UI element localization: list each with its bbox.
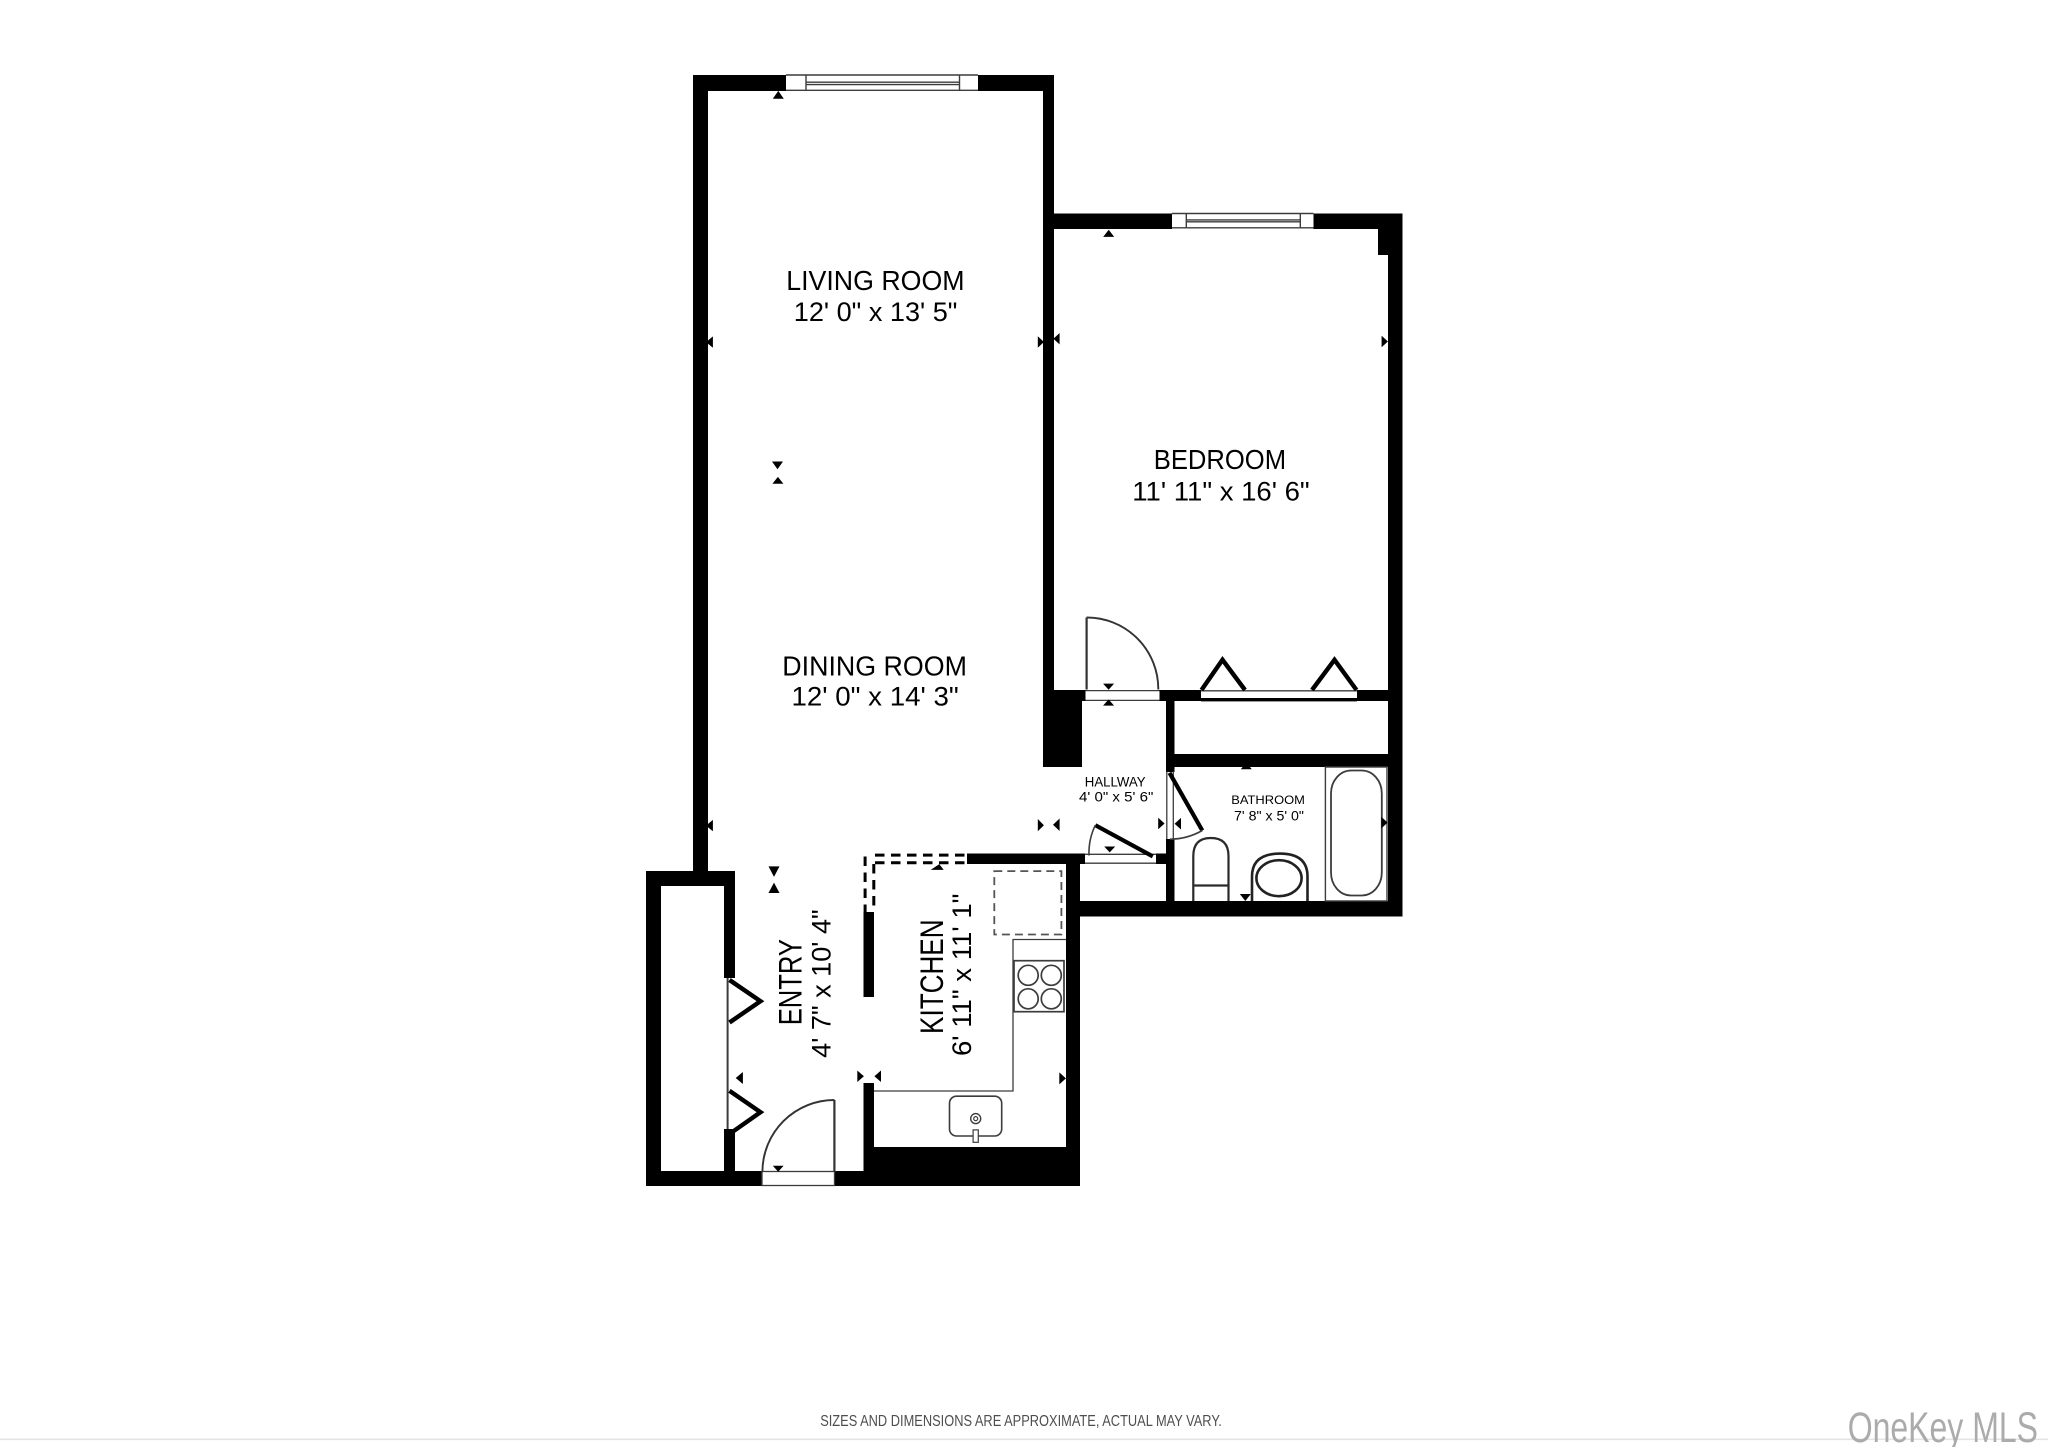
svg-text:LIVING ROOM: LIVING ROOM xyxy=(786,265,964,296)
svg-text:HALLWAY: HALLWAY xyxy=(1085,773,1146,789)
svg-text:OneKey MLS: OneKey MLS xyxy=(1848,1405,2038,1447)
svg-text:6' 11" x 11' 1": 6' 11" x 11' 1" xyxy=(947,894,977,1057)
svg-text:BEDROOM: BEDROOM xyxy=(1154,444,1286,475)
svg-text:12' 0" x 14' 3": 12' 0" x 14' 3" xyxy=(792,682,959,712)
svg-text:4' 0" x 5' 6": 4' 0" x 5' 6" xyxy=(1079,789,1153,805)
svg-text:ENTRY: ENTRY xyxy=(772,939,808,1025)
svg-text:11' 11" x 16' 6": 11' 11" x 16' 6" xyxy=(1132,477,1309,507)
svg-text:KITCHEN: KITCHEN xyxy=(914,919,950,1033)
svg-text:4' 7" x 10' 4": 4' 7" x 10' 4" xyxy=(807,909,837,1058)
svg-text:BATHROOM: BATHROOM xyxy=(1231,794,1305,807)
svg-text:SIZES AND DIMENSIONS ARE APPRO: SIZES AND DIMENSIONS ARE APPROXIMATE, AC… xyxy=(820,1413,1222,1430)
svg-text:DINING ROOM: DINING ROOM xyxy=(782,650,967,681)
svg-text:7' 8" x 5' 0": 7' 8" x 5' 0" xyxy=(1234,808,1304,824)
svg-text:12' 0" x 13' 5": 12' 0" x 13' 5" xyxy=(794,297,958,327)
